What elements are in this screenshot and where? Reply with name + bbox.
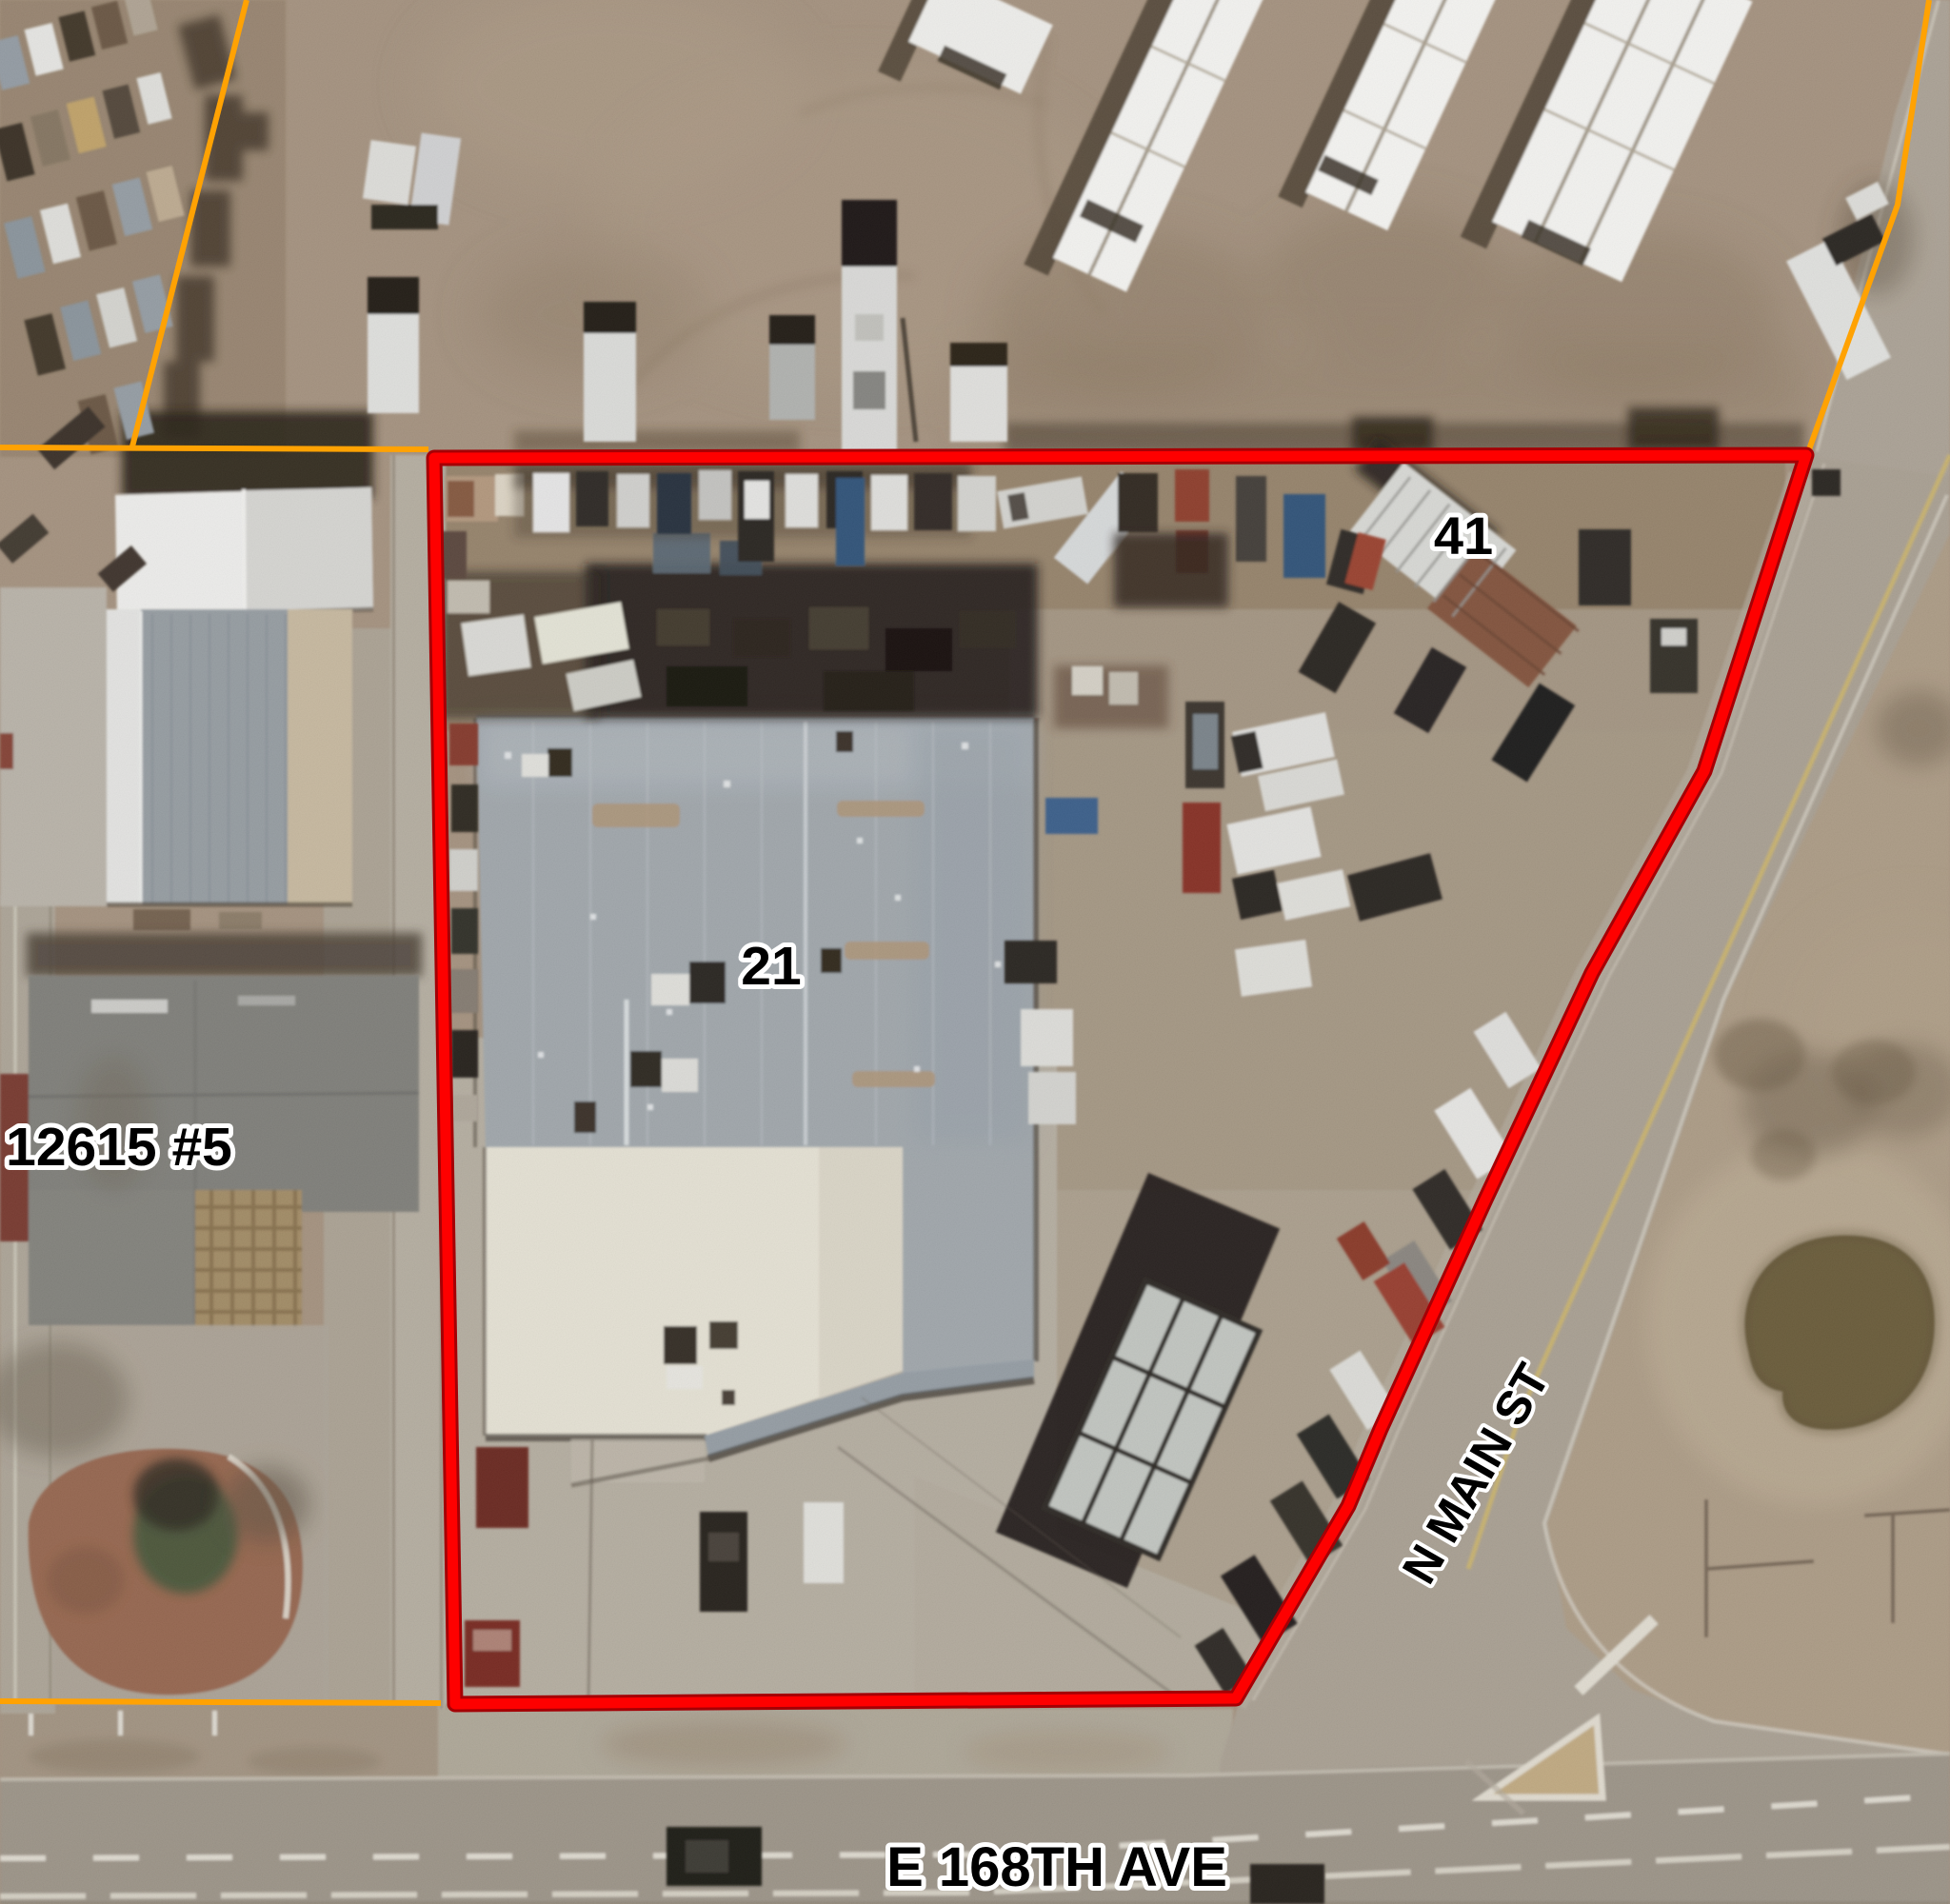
svg-text:41: 41 — [1434, 506, 1493, 565]
svg-text:E 168TH AVE: E 168TH AVE — [886, 1836, 1227, 1898]
svg-text:12615 #5: 12615 #5 — [6, 1117, 232, 1178]
svg-text:21: 21 — [741, 936, 801, 997]
